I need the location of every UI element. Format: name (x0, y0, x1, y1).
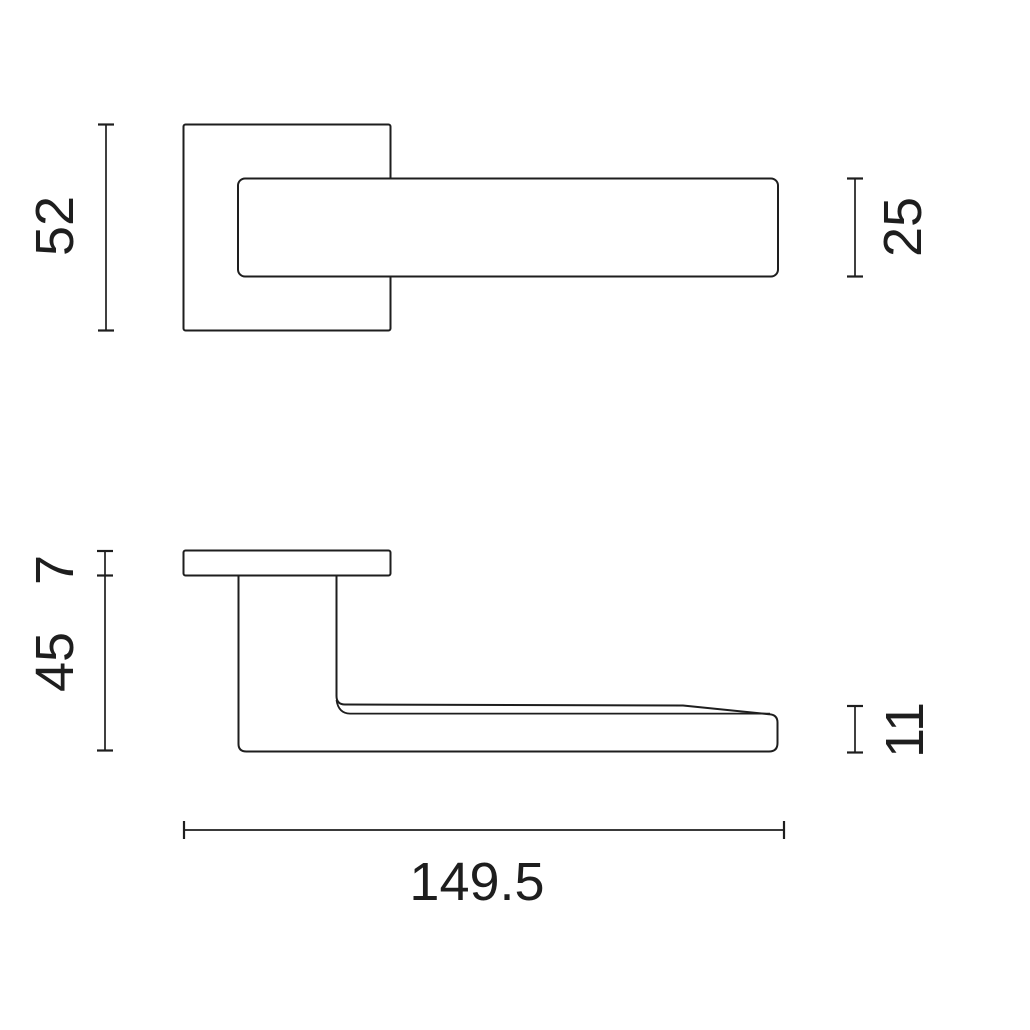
dim-label-lever-bar-width: 25 (876, 197, 930, 257)
side-view (184, 551, 778, 752)
lever-profile-outline (239, 575, 778, 752)
dimension-line-lever-thickness (847, 706, 863, 753)
dimension-line-rosette-size (98, 125, 114, 331)
front-view (184, 125, 779, 331)
dim-label-rosette-size: 52 (28, 196, 82, 256)
technical-drawing-page: 52 25 7 45 11 149.5 (0, 0, 1030, 1030)
dimension-line-lever-bar-width (847, 179, 863, 277)
dim-label-overall-length: 149.5 (409, 855, 544, 909)
dimension-line-overall-length (184, 821, 784, 839)
dimension-line-thickness-projection (97, 551, 113, 751)
dim-label-handle-projection: 45 (28, 632, 82, 692)
rosette-profile-outline (184, 551, 391, 576)
dim-label-lever-thickness: 11 (878, 702, 932, 758)
lever-bar-outline (238, 179, 778, 277)
dim-label-rosette-thickness: 7 (28, 555, 82, 585)
